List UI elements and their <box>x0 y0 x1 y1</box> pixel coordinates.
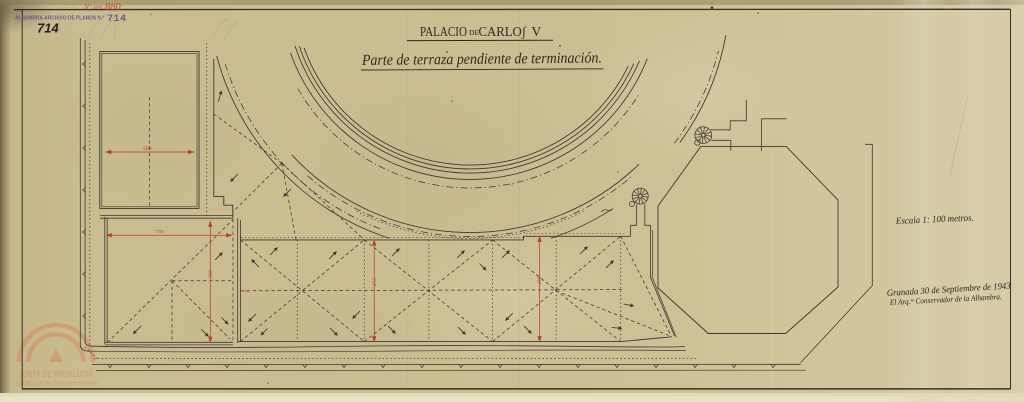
svg-text:300: 300 <box>208 270 214 280</box>
svg-text:Parte de terraza pendiente de: Parte de terraza pendiente de terminació… <box>361 49 602 69</box>
svg-text:236: 236 <box>537 277 543 286</box>
svg-text:CONSEJERÍA DE CULTURA Y DEPORT: CONSEJERÍA DE CULTURA Y DEPORTE <box>16 380 99 388</box>
svg-text:.: . <box>131 15 133 23</box>
svg-text:*: * <box>149 12 153 20</box>
svg-text:770: 770 <box>155 230 164 236</box>
svg-text:714: 714 <box>37 21 59 36</box>
svg-text:PALACIO: PALACIO <box>420 24 467 39</box>
svg-text:JUNTA DE ANDALUCIA: JUNTA DE ANDALUCIA <box>19 369 93 379</box>
svg-text:880: 880 <box>105 2 122 13</box>
svg-text:255: 255 <box>372 278 378 287</box>
svg-text:500: 500 <box>143 146 152 152</box>
svg-text:Nº inv.: Nº inv. <box>83 2 104 11</box>
svg-text:ALHAMBRA-ARCHIVO DE PLANOS N.º: ALHAMBRA-ARCHIVO DE PLANOS N.º <box>15 16 104 22</box>
svg-text:CARLOʃ: CARLOʃ <box>479 24 527 39</box>
svg-text:V: V <box>532 24 542 39</box>
svg-text:714: 714 <box>108 13 127 24</box>
svg-text:C55 11: C55 11 <box>60 4 77 10</box>
